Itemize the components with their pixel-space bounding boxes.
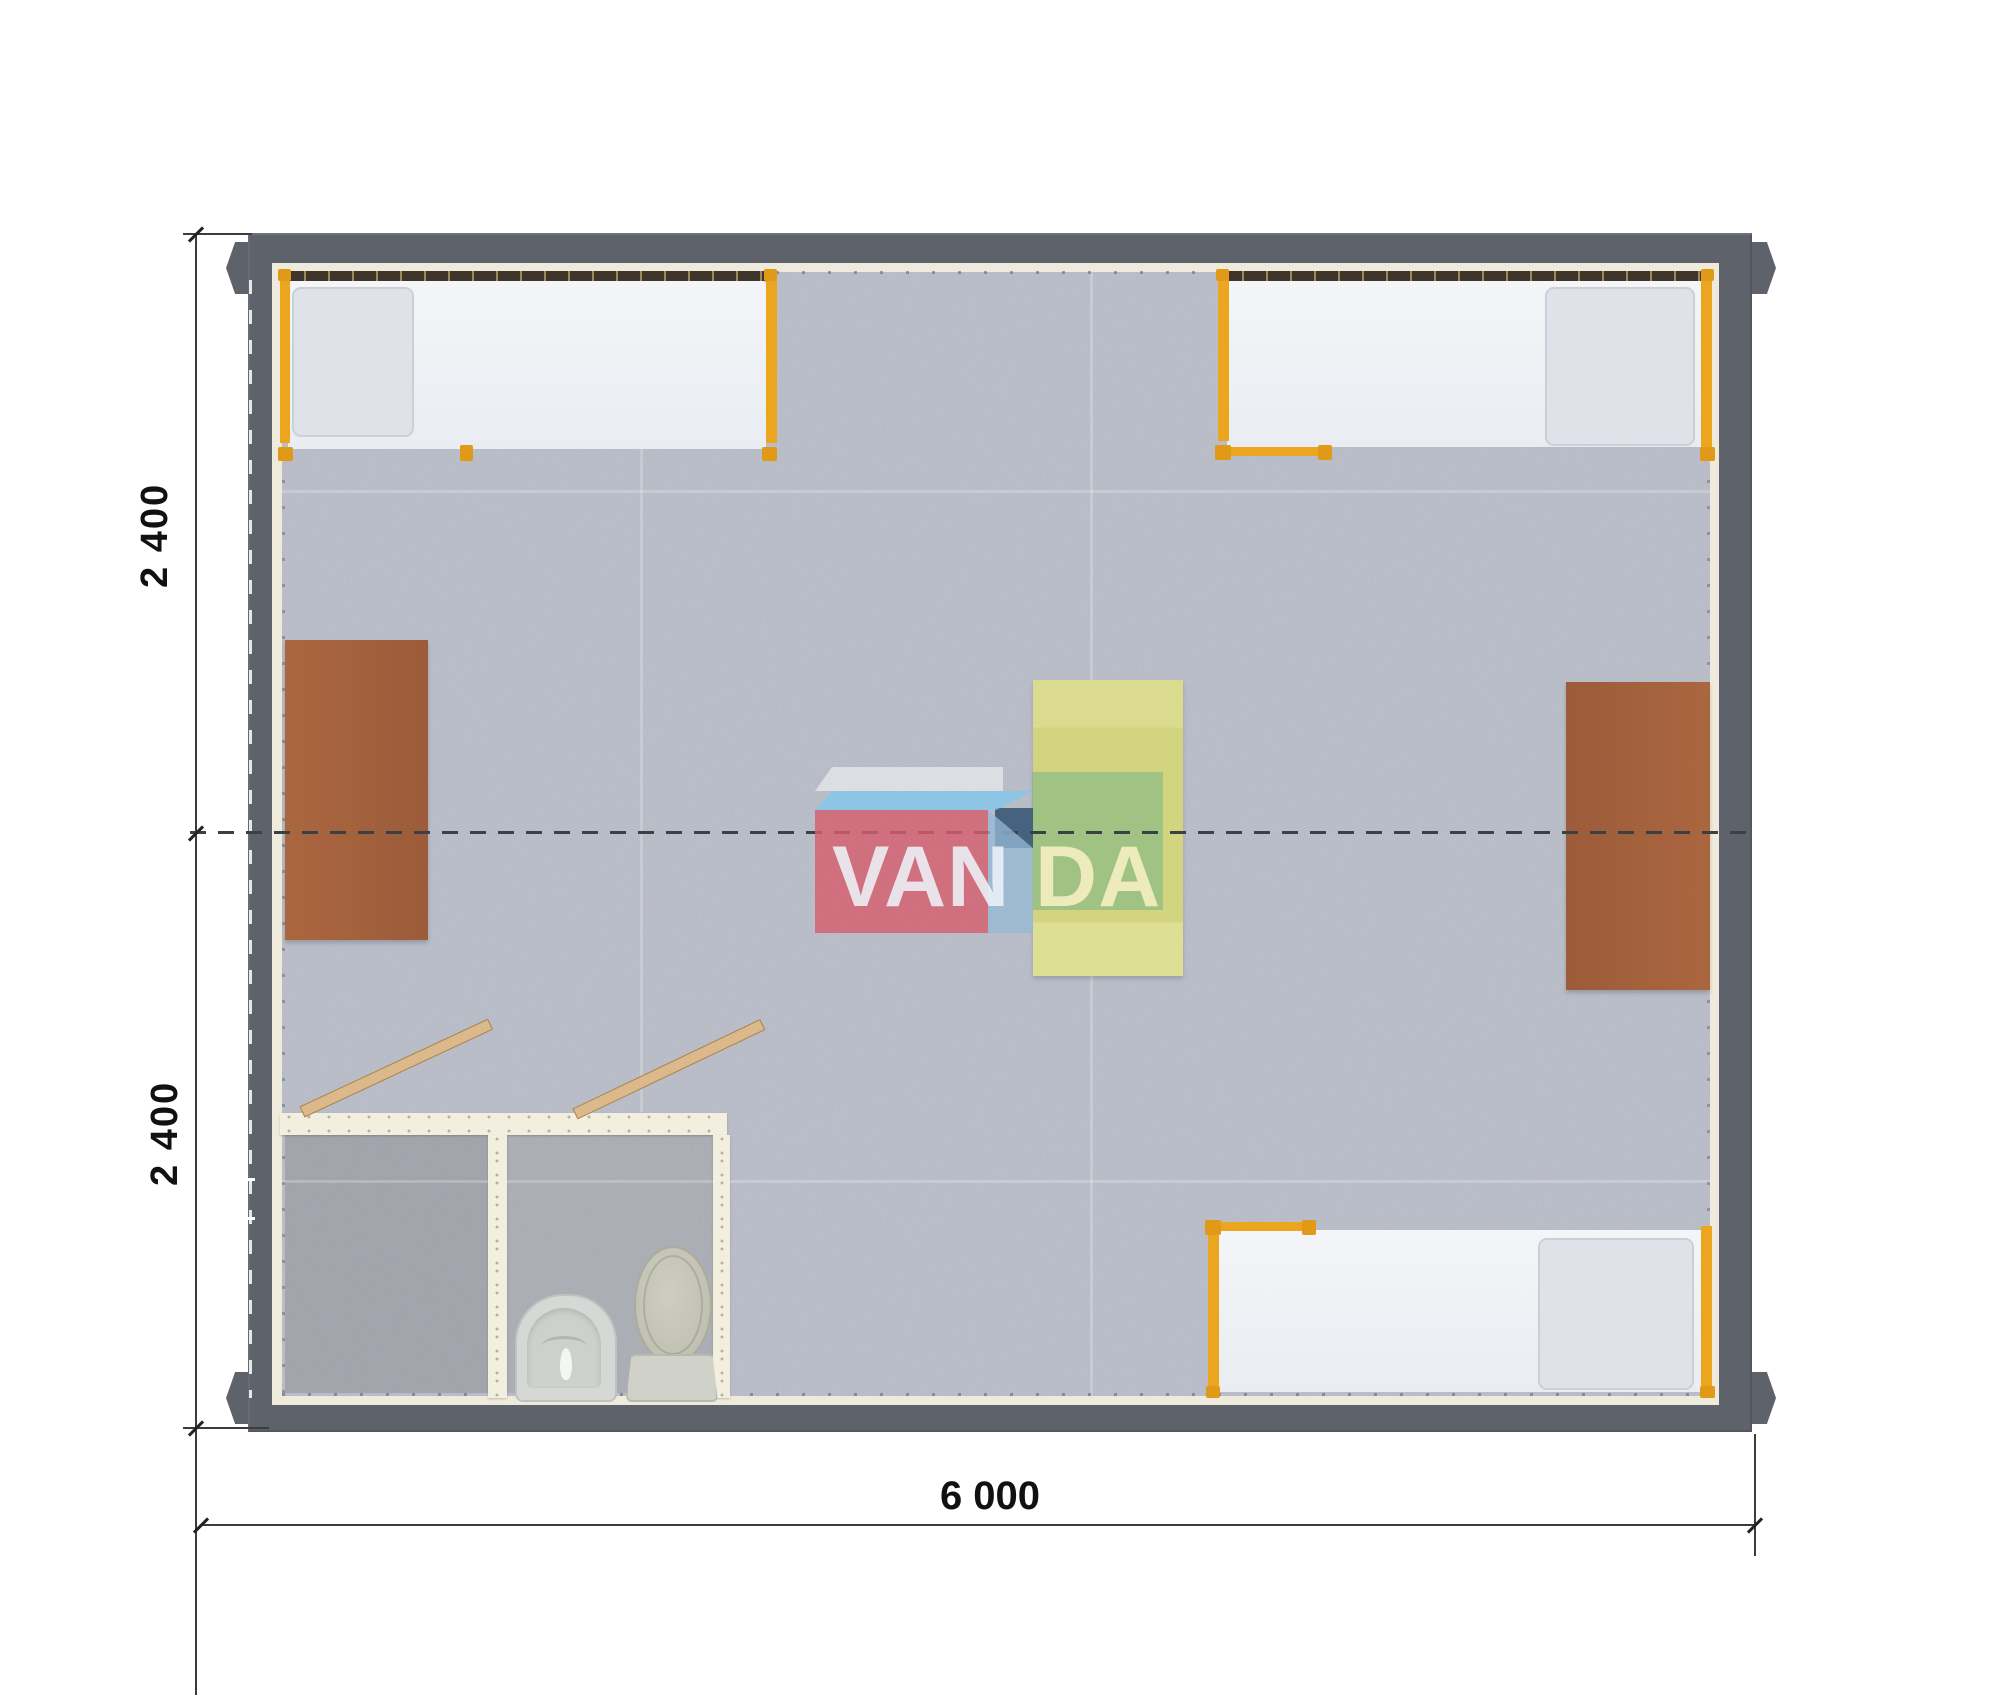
floor-plan-canvas: 2 400 2 400 6 000: [0, 0, 2000, 1701]
bed-post: [1700, 1386, 1715, 1398]
corner-casting-bottom-right: [1750, 1372, 1776, 1424]
dimension-label-width: 6 000: [880, 1474, 1100, 1519]
floor-seam: [282, 490, 1710, 493]
bed-frame-rail: [1228, 447, 1320, 456]
bed-frame-bar: [1208, 1228, 1219, 1396]
bed-post: [1701, 269, 1714, 281]
bed-top-right: [1218, 271, 1712, 457]
sink: [515, 1294, 617, 1402]
dimension-label-top-module: 2 400: [134, 450, 190, 620]
bed-post: [278, 447, 293, 461]
pillow: [1538, 1238, 1694, 1390]
dimension-line-horizontal: [200, 1524, 1756, 1526]
bed-post: [1216, 269, 1229, 281]
bed-frame-rail: [1219, 1222, 1304, 1231]
bed-frame-bar: [280, 279, 290, 443]
logo-highlight-band: [815, 767, 1003, 791]
bed-post: [1302, 1220, 1316, 1235]
left-wall-profile-dashes: [249, 280, 252, 1398]
pillow: [1545, 287, 1695, 446]
dimension-label-bottom-module: 2 400: [144, 1048, 200, 1218]
bed-post: [764, 269, 777, 281]
bed-post: [762, 447, 777, 461]
corner-casting-top-right: [1750, 242, 1776, 294]
bed-post: [460, 445, 473, 461]
exterior-door-mark: [236, 1178, 255, 1220]
extension-line-right: [1754, 1434, 1756, 1556]
dimension-line-vertical: [195, 233, 197, 1695]
bed-head-rail: [280, 271, 777, 281]
bed-bottom-right: [1208, 1222, 1712, 1398]
bed-post: [1205, 1220, 1221, 1235]
logo-text-van: VAN: [832, 834, 1010, 920]
bathroom-wall-divider: [488, 1135, 507, 1398]
toilet-tank: [626, 1354, 718, 1402]
desk-left: [285, 640, 428, 940]
bed-top-left: [280, 271, 777, 461]
bathroom-wall-horizontal: [280, 1113, 727, 1135]
bed-post: [1206, 1386, 1220, 1398]
bed-post: [278, 269, 291, 281]
bed-frame-bar: [1701, 279, 1712, 447]
bed-frame-bar: [1218, 279, 1229, 441]
desk-right: [1566, 682, 1710, 990]
sink-faucet: [560, 1348, 572, 1380]
bed-post: [1215, 445, 1231, 460]
toilet-lid: [634, 1246, 712, 1364]
bathroom-floor-left: [285, 1135, 488, 1393]
bathroom-wall-right: [713, 1135, 730, 1398]
bed-frame-bar: [1701, 1226, 1712, 1396]
pillow: [292, 287, 414, 437]
logo-text-da: DA: [1035, 834, 1161, 920]
logo-cube-top-face: [815, 791, 1033, 810]
bed-post: [1700, 447, 1715, 461]
bed-head-rail: [1218, 271, 1712, 281]
bed-frame-bar: [766, 279, 777, 443]
bed-post: [1318, 445, 1332, 460]
